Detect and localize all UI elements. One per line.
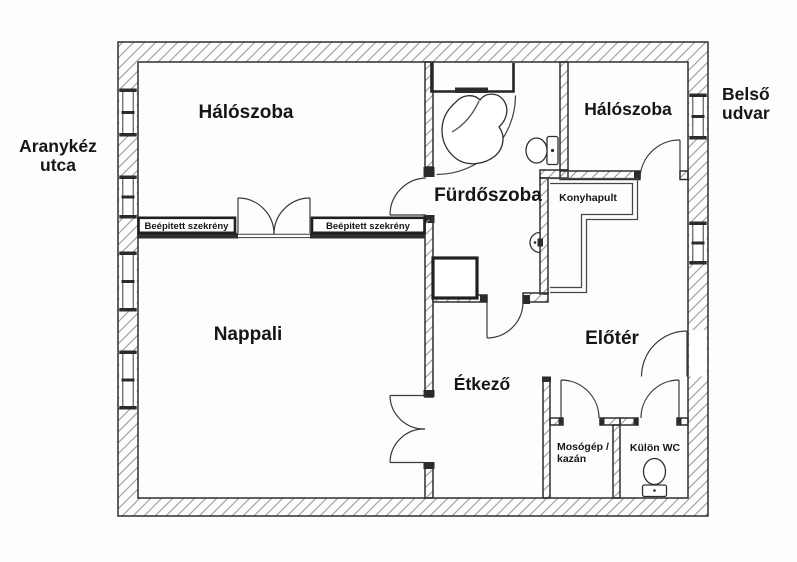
- door-entrance: [642, 331, 688, 377]
- bathroom-wall-upper: [560, 62, 568, 170]
- room-label-utility-line1: Mosógép /: [557, 441, 609, 453]
- room-label-dining-room: Étkező: [454, 373, 510, 394]
- street-label-line2: utca: [40, 155, 76, 175]
- wall-a-cap3: [424, 390, 435, 397]
- window-left-3: [119, 252, 136, 312]
- shaft: [433, 258, 477, 298]
- street-label-line1: Aranykéz: [19, 136, 97, 156]
- door-utility: [561, 380, 599, 418]
- wall-a-cap1: [424, 167, 435, 177]
- wardrobe-label-right: Beépitett szekrény: [326, 221, 411, 232]
- room-label-bedroom-left: Hálószoba: [198, 102, 293, 123]
- wc-top-cap-2: [677, 418, 682, 425]
- wardrobe-label-left: Beépitett szekrény: [145, 221, 230, 232]
- floor-plan: Hálószoba Hálószoba Fürdőszoba Konyhapul…: [0, 0, 797, 562]
- door-dining-bathroom: [487, 302, 523, 338]
- window-left-2: [119, 176, 136, 219]
- wc-toilet-icon: [643, 459, 667, 497]
- toilet-icon: [526, 137, 558, 165]
- room-label-entry-hall: Előtér: [585, 328, 639, 349]
- room-label-wc: Külön WC: [630, 442, 681, 454]
- door-bedroom2: [640, 140, 680, 179]
- tub-niche-bar: [455, 88, 488, 94]
- tub-niche-wall: [432, 63, 514, 92]
- room-label-utility-line2: kazán: [557, 453, 586, 465]
- room-label-kitchen-counter: Konyhapult: [559, 192, 617, 204]
- courtyard-label-line2: udvar: [722, 103, 770, 123]
- utility-top-cap-1: [559, 418, 564, 425]
- wc-top-cap-1: [634, 418, 639, 425]
- double-door-bedroom1: [238, 198, 310, 234]
- bathroom-bottom-cap2: [523, 295, 530, 304]
- utility-wc-divider: [613, 425, 620, 498]
- door-wc: [641, 380, 679, 418]
- wall-a-mid: [425, 219, 433, 397]
- corner-bathtub-icon: [437, 94, 516, 174]
- courtyard-label-line1: Belső: [722, 84, 770, 104]
- double-door-living-dining: [390, 396, 425, 463]
- windows: [119, 89, 706, 410]
- window-left-1: [119, 89, 136, 137]
- room-label-bathroom: Fürdőszoba: [434, 185, 542, 206]
- bedroom2-wall-stub: [680, 171, 688, 180]
- entrance-opening: [689, 330, 706, 377]
- bathroom-bottom-cap1: [480, 295, 487, 302]
- utility-west-wall: [543, 380, 550, 498]
- window-left-4: [119, 351, 136, 410]
- utility-top-cap-2: [600, 418, 605, 425]
- window-right-2: [689, 222, 706, 265]
- room-label-living-room: Nappali: [214, 324, 283, 345]
- room-label-bedroom-right: Hálószoba: [584, 99, 672, 119]
- wall-a-bottom: [425, 466, 433, 498]
- door-bedroom1-bathroom: [390, 178, 426, 215]
- window-right-1: [689, 94, 706, 140]
- floorplan-page: Hálószoba Hálószoba Fürdőszoba Konyhapul…: [0, 0, 797, 562]
